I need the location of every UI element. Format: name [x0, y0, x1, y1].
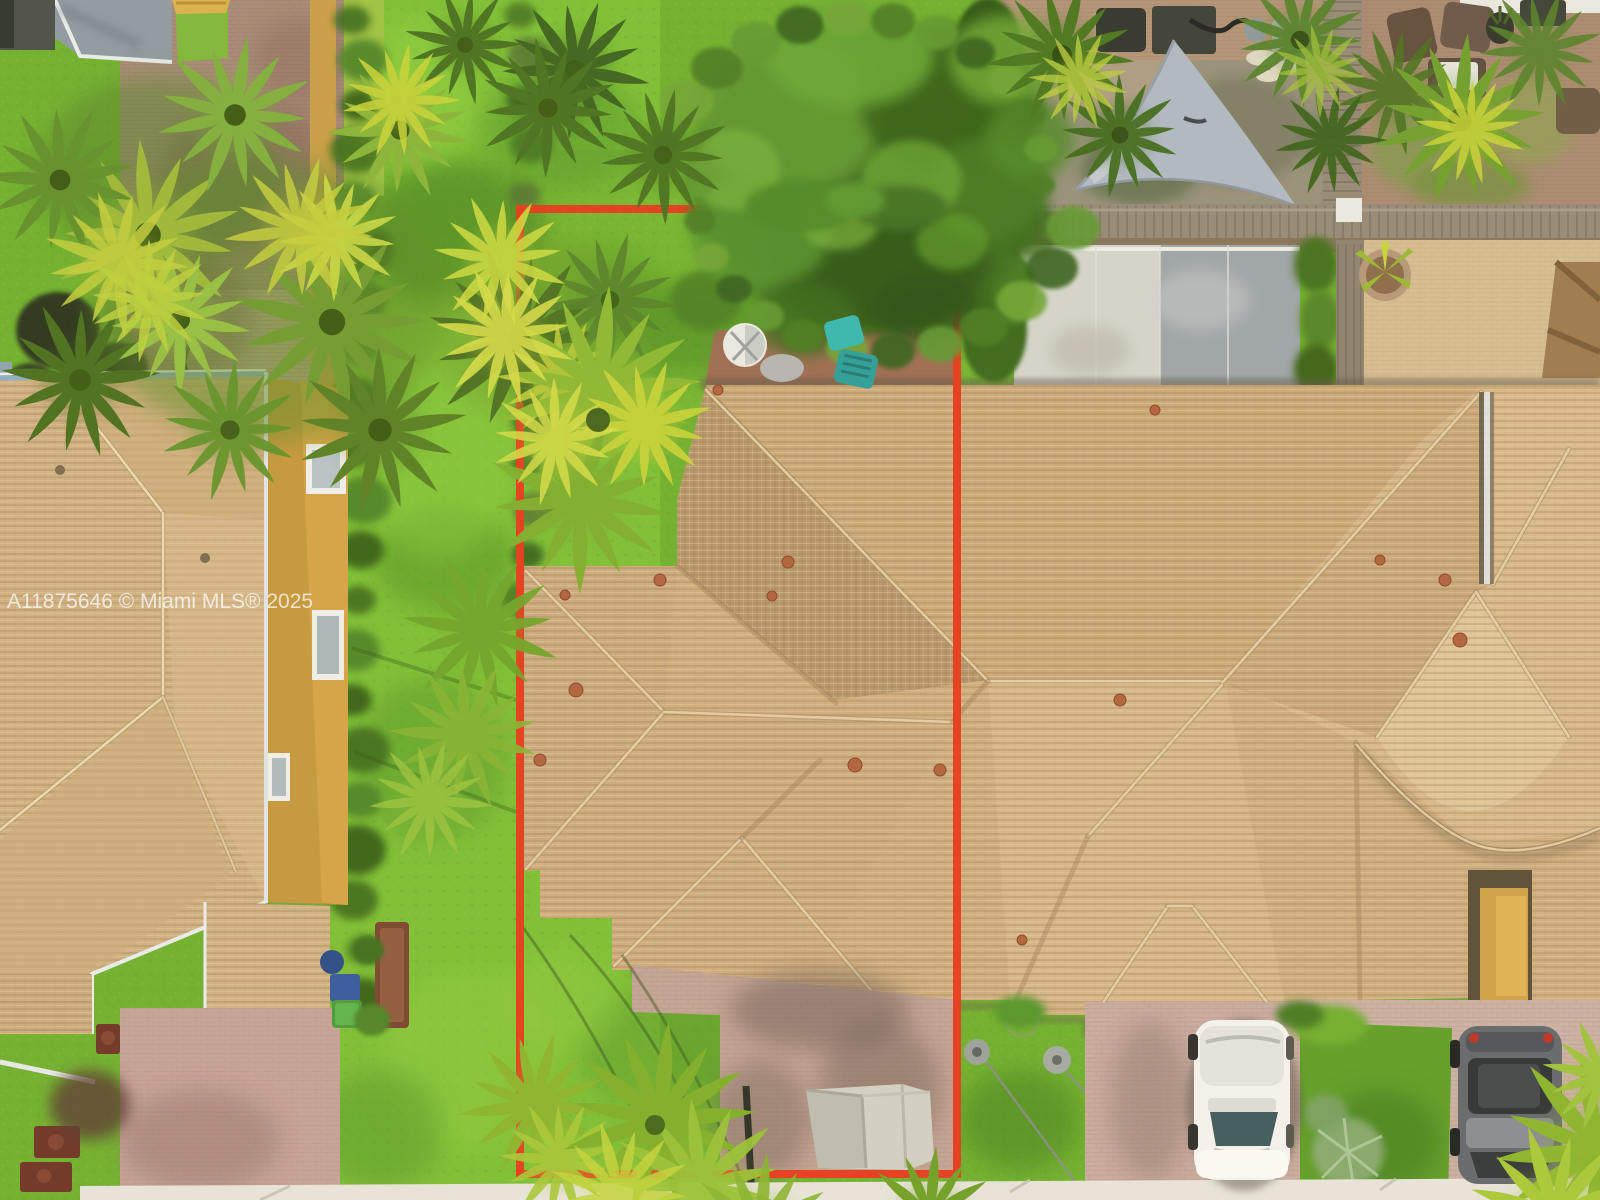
svg-text:A11875646 © Miami MLS® 2025: A11875646 © Miami MLS® 2025 [7, 590, 313, 613]
